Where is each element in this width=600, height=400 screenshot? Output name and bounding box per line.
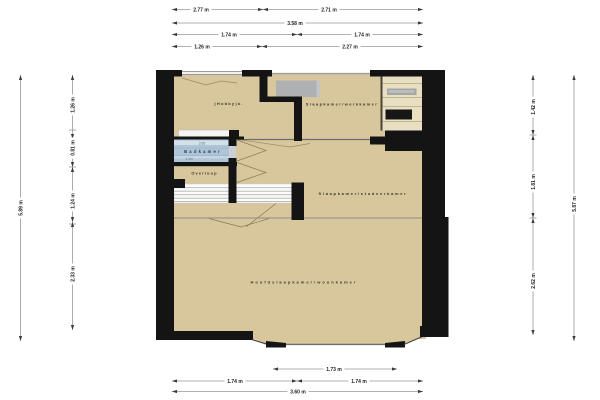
svg-text:1.74 m: 1.74 m: [221, 32, 237, 38]
svg-text:(Hobby)k.: (Hobby)k.: [214, 101, 243, 106]
svg-text:1.26 m: 1.26 m: [194, 44, 210, 50]
svg-text:2.71 m: 2.71 m: [321, 7, 337, 13]
svg-text:Overloop: Overloop: [191, 171, 217, 176]
svg-text:1.74 m: 1.74 m: [354, 32, 370, 38]
svg-text:2.62 m: 2.62 m: [531, 273, 537, 289]
svg-text:1.74 m: 1.74 m: [227, 379, 243, 385]
svg-text:1.1m: 1.1m: [185, 157, 192, 161]
svg-text:1.73 m: 1.73 m: [326, 367, 342, 373]
svg-text:Slaapkamer/werkkamer: Slaapkamer/werkkamer: [306, 102, 378, 107]
svg-text:5.87 m: 5.87 m: [572, 196, 578, 212]
svg-text:3.60 m: 3.60 m: [290, 389, 306, 395]
svg-text:Badkamer: Badkamer: [184, 149, 222, 154]
svg-text:Slaapkamer/studeerkamer: Slaapkamer/studeerkamer: [319, 191, 408, 196]
svg-text:1.24 m: 1.24 m: [70, 193, 76, 209]
svg-text:1.74 m: 1.74 m: [351, 379, 367, 385]
svg-text:Hoofdslaapkamer/woonkamer: Hoofdslaapkamer/woonkamer: [251, 279, 358, 284]
svg-text:1.42 m: 1.42 m: [531, 99, 537, 115]
svg-text:0.81 m: 0.81 m: [70, 140, 76, 156]
svg-text:1.26 m: 1.26 m: [70, 97, 76, 113]
svg-text:3.58 m: 3.58 m: [287, 21, 303, 27]
svg-text:1.81 m: 1.81 m: [531, 174, 537, 190]
svg-text:5.89 m: 5.89 m: [18, 200, 24, 216]
svg-text:2.05: 2.05: [199, 142, 205, 146]
svg-text:2.27 m: 2.27 m: [342, 44, 358, 50]
svg-text:2.77 m: 2.77 m: [193, 7, 209, 13]
svg-text:2.33 m: 2.33 m: [70, 266, 76, 282]
